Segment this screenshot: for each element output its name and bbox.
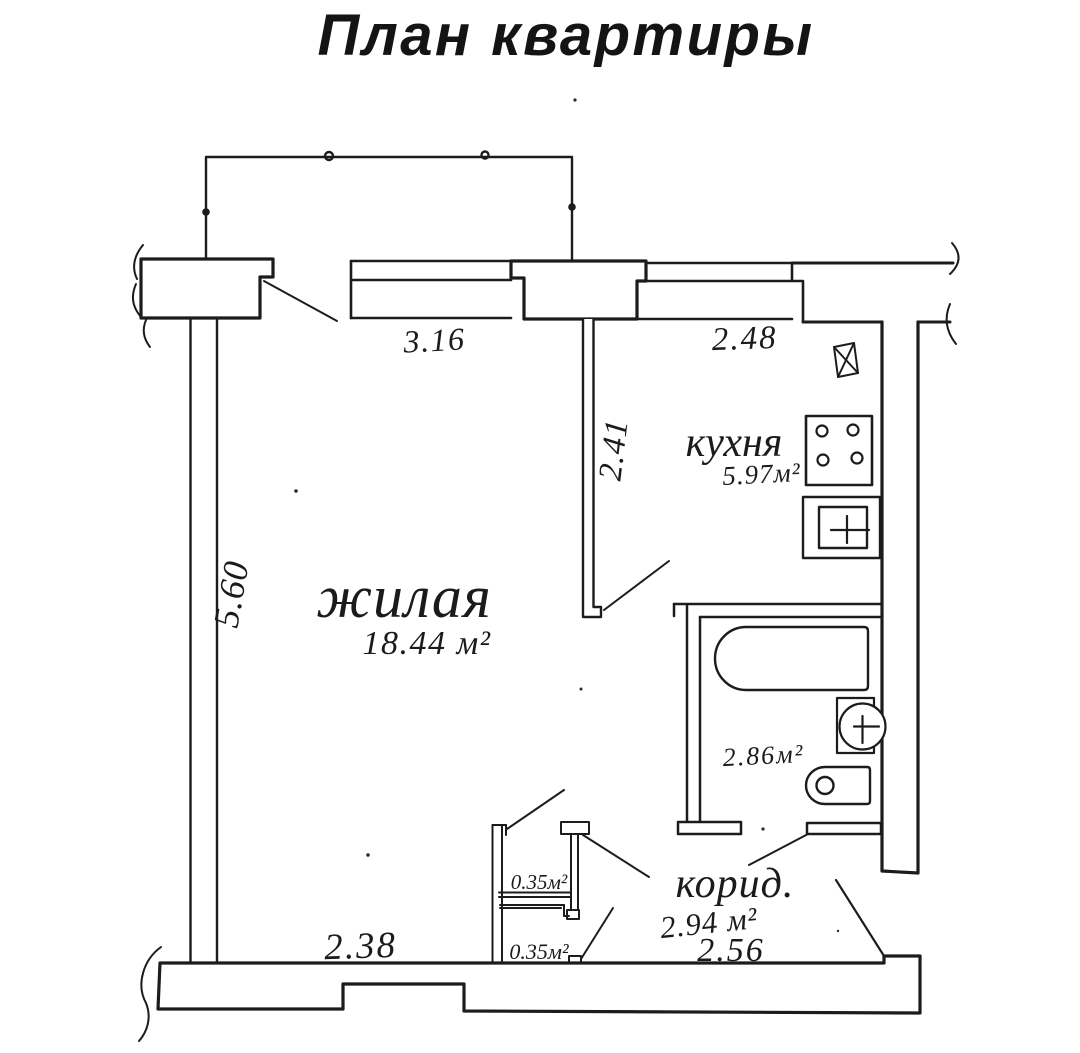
svg-text:2.38: 2.38	[324, 925, 398, 969]
svg-text:3.16: 3.16	[402, 320, 467, 359]
svg-text:2.86м²: 2.86м²	[722, 739, 805, 772]
svg-text:5.97м²: 5.97м²	[722, 457, 802, 491]
svg-text:5.60: 5.60	[206, 557, 257, 630]
svg-text:0.35м²: 0.35м²	[509, 939, 569, 964]
svg-text:2.56: 2.56	[697, 932, 765, 969]
svg-text:жилая: жилая	[316, 564, 492, 630]
svg-text:2.41: 2.41	[592, 417, 635, 483]
svg-text:2.48: 2.48	[711, 320, 778, 358]
svg-text:0.35м²: 0.35м²	[511, 870, 568, 894]
svg-text:План квартиры: План квартиры	[317, 3, 814, 68]
svg-text:корид.: корид.	[676, 861, 795, 907]
svg-text:18.44 м²: 18.44 м²	[363, 625, 492, 662]
